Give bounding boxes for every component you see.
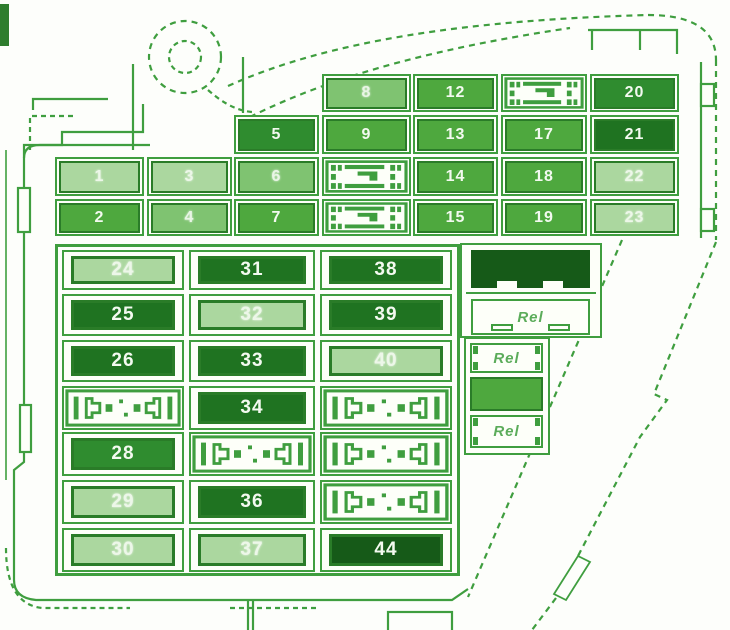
relay-tab	[548, 324, 570, 331]
relay-box-rail-2: Rel	[470, 415, 543, 448]
relay-panel-divider	[466, 292, 596, 294]
relay-panel: Rel Rel Rel	[0, 0, 730, 630]
fuse-box-diagram: 1234567891213141517181920212223 24252628…	[0, 0, 730, 630]
relay-panel-wide: Rel	[460, 243, 602, 338]
relay-tab	[491, 324, 513, 331]
relay-panel-narrow: Rel Rel	[464, 337, 550, 455]
relay-slot-dark	[471, 250, 590, 288]
relay-notch	[497, 281, 517, 289]
relay-slot-green	[470, 377, 543, 411]
relay-box-label: Rel	[472, 345, 541, 371]
relay-box-wide: Rel	[471, 299, 590, 335]
relay-notch	[543, 281, 563, 289]
relay-box-label: Rel	[472, 417, 541, 446]
relay-box-rail-1: Rel	[470, 343, 543, 373]
